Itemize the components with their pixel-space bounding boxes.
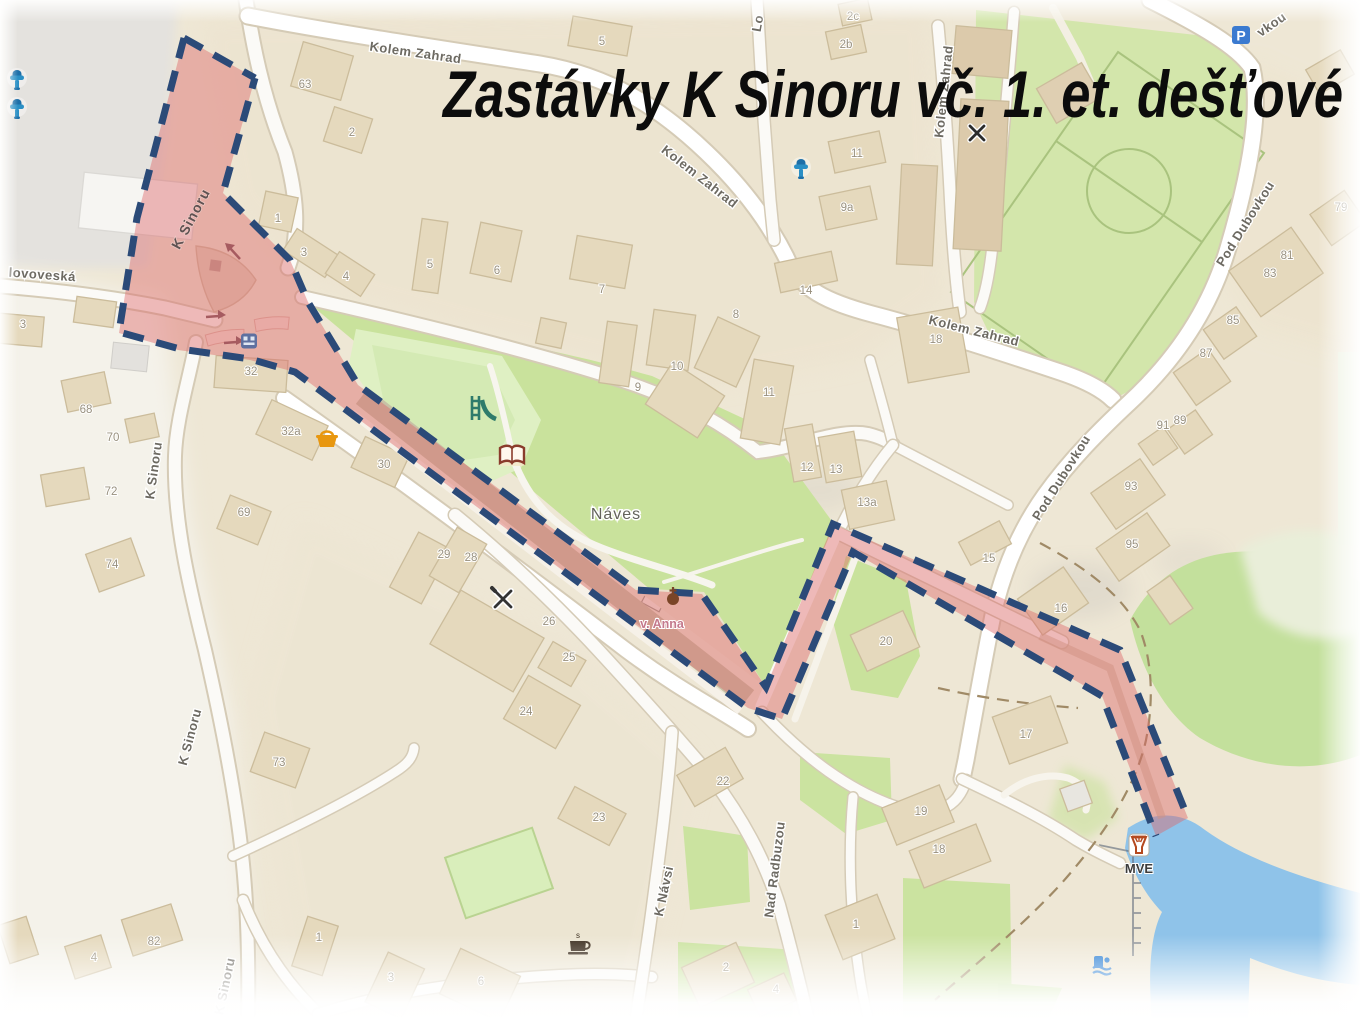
svg-text:P: P — [1236, 28, 1245, 44]
svg-text:72: 72 — [105, 486, 118, 498]
svg-text:20: 20 — [880, 636, 893, 648]
svg-text:28: 28 — [465, 552, 478, 564]
svg-text:24: 24 — [520, 706, 533, 718]
svg-text:83: 83 — [1264, 268, 1277, 280]
svg-text:7: 7 — [599, 284, 605, 296]
svg-text:3: 3 — [20, 319, 26, 331]
svg-text:13: 13 — [830, 464, 843, 476]
svg-text:Zastávky K Sinoru vč. 1. et. d: Zastávky K Sinoru vč. 1. et. dešťové — [441, 57, 1343, 131]
svg-text:89: 89 — [1174, 415, 1187, 427]
svg-text:15: 15 — [983, 553, 996, 565]
svg-text:63: 63 — [299, 79, 312, 91]
svg-text:5: 5 — [599, 36, 605, 48]
svg-text:32a: 32a — [281, 426, 301, 438]
svg-text:2b: 2b — [840, 39, 853, 51]
svg-text:26: 26 — [543, 616, 556, 628]
svg-text:18: 18 — [930, 334, 943, 346]
svg-text:MVE: MVE — [1125, 861, 1154, 876]
svg-text:5: 5 — [427, 259, 433, 271]
svg-text:69: 69 — [238, 507, 251, 519]
svg-text:85: 85 — [1227, 315, 1240, 327]
svg-text:17: 17 — [1020, 729, 1033, 741]
svg-text:23: 23 — [593, 812, 606, 824]
svg-text:30: 30 — [378, 459, 391, 471]
svg-text:16: 16 — [1055, 603, 1068, 615]
svg-text:1: 1 — [853, 919, 859, 931]
svg-text:6: 6 — [494, 265, 500, 277]
svg-text:2: 2 — [349, 127, 355, 139]
svg-text:4: 4 — [343, 271, 350, 283]
svg-text:14: 14 — [800, 285, 813, 297]
svg-text:29: 29 — [438, 549, 451, 561]
svg-text:68: 68 — [80, 404, 93, 416]
svg-text:1: 1 — [275, 213, 281, 225]
svg-text:81: 81 — [1281, 250, 1294, 262]
svg-text:32: 32 — [245, 366, 258, 378]
svg-text:8: 8 — [733, 309, 739, 321]
svg-text:13a: 13a — [857, 497, 877, 509]
svg-text:95: 95 — [1126, 539, 1139, 551]
svg-text:93: 93 — [1125, 481, 1138, 493]
svg-text:87: 87 — [1200, 348, 1213, 360]
svg-text:73: 73 — [273, 757, 286, 769]
svg-text:11: 11 — [763, 387, 775, 399]
svg-text:19: 19 — [915, 806, 928, 818]
svg-text:25: 25 — [563, 652, 576, 664]
svg-text:18: 18 — [933, 844, 946, 856]
svg-text:9a: 9a — [841, 202, 854, 214]
svg-text:12: 12 — [801, 462, 814, 474]
svg-text:74: 74 — [106, 559, 119, 571]
svg-text:9: 9 — [635, 382, 641, 394]
svg-text:10: 10 — [671, 361, 684, 373]
svg-text:22: 22 — [717, 776, 730, 788]
svg-text:11: 11 — [851, 148, 863, 160]
svg-text:91: 91 — [1157, 420, 1170, 432]
svg-text:3: 3 — [301, 247, 307, 259]
svg-text:Náves: Náves — [591, 506, 641, 523]
svg-text:70: 70 — [107, 432, 120, 444]
svg-text:v. Anna: v. Anna — [640, 617, 685, 631]
